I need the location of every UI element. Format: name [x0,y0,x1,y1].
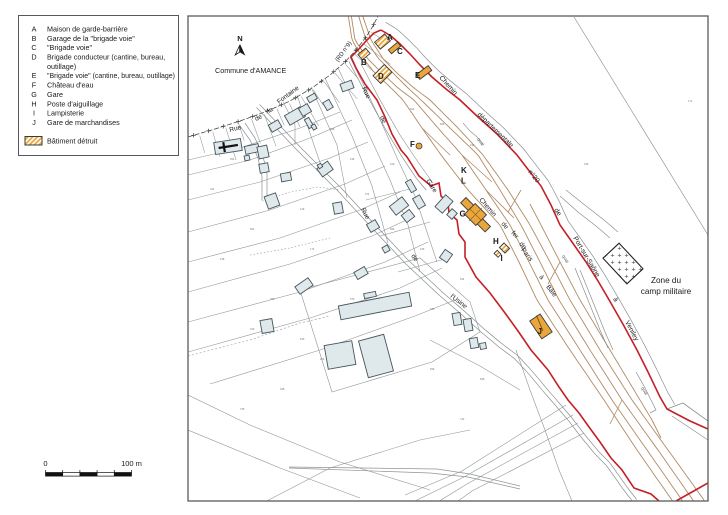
svg-text:648: 648 [330,127,335,131]
svg-text:431: 431 [210,187,215,191]
svg-text:504: 504 [250,227,255,231]
svg-text:Gare de marchandises: Gare de marchandises [47,118,120,127]
svg-text:Lampisterie: Lampisterie [47,109,84,118]
svg-text:G: G [460,210,466,219]
svg-text:534: 534 [410,107,415,111]
svg-text:544: 544 [460,277,465,281]
svg-text:Zone du: Zone du [651,276,681,285]
svg-text:D: D [31,53,36,62]
svg-text:G: G [31,90,37,99]
svg-text:171: 171 [688,99,693,103]
svg-text:F: F [32,81,37,90]
svg-text:226: 226 [320,357,325,361]
svg-text:328: 328 [280,387,285,391]
svg-text:N: N [237,34,242,43]
svg-text:E: E [415,71,421,80]
svg-text:664: 664 [440,122,445,126]
svg-text:"Brigade voie": "Brigade voie" [47,43,93,52]
svg-text:319: 319 [250,327,255,331]
svg-text:E: E [32,71,37,80]
svg-text:192: 192 [470,143,475,147]
svg-text:J: J [32,118,36,127]
svg-text:Poste d'aiguillage: Poste d'aiguillage [47,99,103,108]
svg-text:K: K [461,166,467,175]
svg-text:B: B [361,58,367,67]
svg-text:745: 745 [240,407,245,411]
svg-text:Garage de la "brigade voie": Garage de la "brigade voie" [47,34,135,43]
svg-text:C: C [397,47,403,56]
svg-text:346: 346 [584,162,589,166]
svg-text:188: 188 [430,307,435,311]
svg-text:696: 696 [430,367,435,371]
svg-text:138: 138 [220,257,225,261]
svg-text:Bâtiment détruit: Bâtiment détruit [47,137,97,146]
svg-text:A: A [32,25,37,34]
svg-text:H: H [493,237,499,246]
svg-text:"Brigade voie" (cantine, burea: "Brigade voie" (cantine, bureau, outilla… [47,71,175,80]
svg-text:I: I [501,254,503,263]
svg-text:Gare: Gare [47,90,63,99]
svg-text:149: 149 [300,207,305,211]
svg-text:camp militaire: camp militaire [641,287,692,296]
svg-text:outillage): outillage) [47,62,76,71]
svg-text:I: I [33,109,35,118]
svg-text:F: F [410,140,415,149]
svg-text:H: H [31,99,36,108]
svg-text:159: 159 [420,247,425,251]
svg-text:174: 174 [310,247,315,251]
svg-text:254: 254 [230,157,235,161]
svg-text:Commune d'AMANCE: Commune d'AMANCE [215,66,286,75]
svg-text:742: 742 [460,417,465,421]
svg-text:D: D [378,72,384,81]
svg-text:Maison de garde-barrière: Maison de garde-barrière [47,25,128,34]
svg-text:100 m: 100 m [121,459,142,468]
svg-text:C: C [31,43,36,52]
svg-text:474: 474 [365,192,370,196]
svg-text:B: B [32,34,37,43]
svg-text:J: J [538,327,542,336]
svg-text:766: 766 [270,297,275,301]
svg-text:619: 619 [300,337,305,341]
svg-text:0: 0 [43,459,47,468]
svg-text:Château d'eau: Château d'eau [47,81,94,90]
svg-text:160: 160 [390,162,395,166]
svg-text:679: 679 [350,297,355,301]
svg-text:196: 196 [350,157,355,161]
svg-text:L: L [461,177,466,186]
svg-text:Brigade conducteur (cantine, b: Brigade conducteur (cantine, bureau, [47,53,165,62]
svg-text:528: 528 [480,377,485,381]
svg-text:696: 696 [390,227,395,231]
svg-text:A: A [387,33,393,42]
